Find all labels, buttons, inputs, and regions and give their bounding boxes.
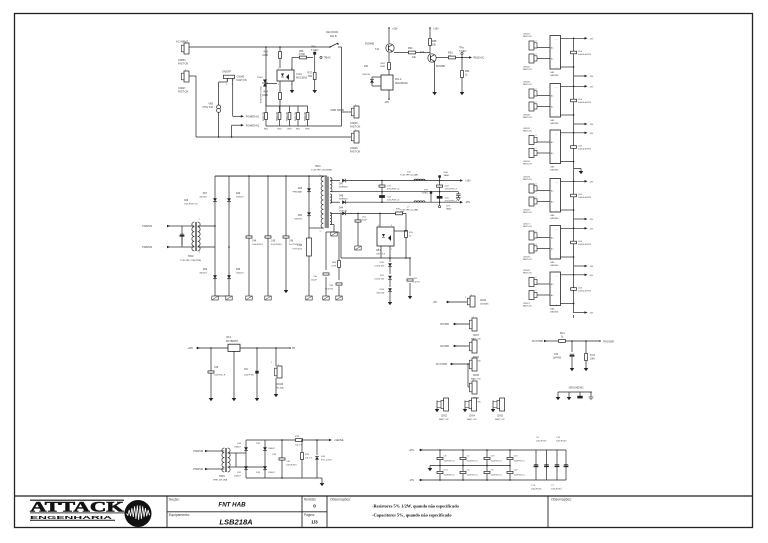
svg-text:10uF/63 L2: 10uF/63 L2 xyxy=(467,475,479,477)
svg-text:C44: C44 xyxy=(252,241,257,243)
svg-text:PWR FRNW: PWR FRNW xyxy=(331,109,345,112)
svg-text:100uF/160: 100uF/160 xyxy=(556,440,567,442)
svg-text:1N4007: 1N4007 xyxy=(199,273,207,275)
svg-text:FAST-ON: FAST-ON xyxy=(467,418,477,421)
svg-text:+15V: +15V xyxy=(409,450,415,452)
svg-text:FAST-ON: FAST-ON xyxy=(237,79,248,82)
svg-text:-Capacitores 5%, quando não es: -Capacitores 5%, quando não especificado xyxy=(372,513,452,518)
svg-text:470uF/35 LZ: 470uF/35 LZ xyxy=(387,200,400,202)
svg-text:1N4007: 1N4007 xyxy=(268,448,276,450)
svg-text:TRF5: TRF5 xyxy=(219,476,225,478)
svg-text:C33: C33 xyxy=(554,354,559,356)
svg-text:TRIGGER: TRIGGER xyxy=(603,341,614,344)
svg-text:10000uF/50V: 10000uF/50V xyxy=(578,244,592,246)
svg-text:1N4148: 1N4148 xyxy=(362,74,370,76)
svg-text:BC546B: BC546B xyxy=(436,65,445,68)
svg-text:ON/OFF: ON/OFF xyxy=(222,71,232,74)
svg-text:DIA.03/04C: DIA.03/04C xyxy=(326,31,339,34)
svg-text:FAST-ON: FAST-ON xyxy=(523,225,532,228)
svg-text:10000uF/50V: 10000uF/50V xyxy=(578,291,592,293)
svg-text:R 18: R 18 xyxy=(590,355,596,357)
svg-text:10uF/63 LE: 10uF/63 LE xyxy=(214,375,226,377)
svg-text:-BV: -BV xyxy=(590,219,594,221)
svg-text:472R: 472R xyxy=(299,53,305,56)
svg-text:FAST-ON: FAST-ON xyxy=(350,151,361,154)
svg-text:-15V: -15V xyxy=(384,101,389,104)
svg-text:-15V: -15V xyxy=(465,201,470,204)
svg-text:W224/3W: W224/3W xyxy=(305,112,307,121)
svg-text:10uF/63 L2: 10uF/63 L2 xyxy=(467,461,479,463)
svg-text:CI13: CI13 xyxy=(226,337,232,339)
svg-text:PWR/SW: PWR/SW xyxy=(142,247,153,249)
svg-text:CN019: CN019 xyxy=(523,177,531,179)
svg-text:-BV: -BV xyxy=(590,275,594,277)
svg-text:GBU806: GBU806 xyxy=(550,75,559,77)
svg-text:470uF/400: 470uF/400 xyxy=(271,244,282,246)
svg-text:FAST-ON: FAST-ON xyxy=(523,163,532,166)
svg-text:2: 2 xyxy=(536,277,537,279)
svg-text:TAB6: TAB6 xyxy=(444,174,450,177)
svg-text:10uF/63 L2: 10uF/63 L2 xyxy=(514,475,526,477)
svg-text:1: 1 xyxy=(199,219,200,221)
svg-text:POWER IN2: POWER IN2 xyxy=(246,124,260,127)
svg-text:RN1: RN1 xyxy=(381,63,386,65)
svg-text:1N4007: 1N4007 xyxy=(268,472,276,474)
svg-text:T14: T14 xyxy=(375,48,380,51)
svg-text:100R: 100R xyxy=(380,66,386,68)
svg-text:46 PWR: 46 PWR xyxy=(440,345,449,348)
svg-text:-15V: -15V xyxy=(409,480,414,482)
svg-text:GB3: GB3 xyxy=(550,167,555,169)
svg-text:+15V: +15V xyxy=(187,347,193,350)
svg-text:FAST-ON: FAST-ON xyxy=(178,63,189,66)
svg-text:2: 2 xyxy=(226,84,227,86)
svg-text:DN4: DN4 xyxy=(380,289,385,291)
svg-text:MOC3063: MOC3063 xyxy=(296,77,308,80)
svg-text:GBU806: GBU806 xyxy=(550,312,559,314)
svg-text:-BV: -BV xyxy=(590,228,594,230)
svg-text:MOC/DIP-STYLE: MOC/DIP-STYLE xyxy=(261,85,263,103)
svg-text:FNT HAB: FNT HAB xyxy=(218,502,246,509)
svg-text:-BV: -BV xyxy=(590,133,594,135)
svg-text:C09: C09 xyxy=(184,200,189,202)
svg-text:CN019: CN019 xyxy=(523,128,531,130)
svg-text:W224/3W: W224/3W xyxy=(287,112,289,121)
svg-text:Observações:: Observações: xyxy=(551,498,572,502)
svg-text:Página:: Página: xyxy=(304,513,315,517)
svg-text:D44: D44 xyxy=(339,208,344,210)
svg-text:100uF/160: 100uF/160 xyxy=(551,488,562,490)
svg-text:TOP242G: TOP242G xyxy=(292,249,302,251)
svg-text:BC546B: BC546B xyxy=(365,43,374,46)
svg-text:Seção:: Seção: xyxy=(169,498,180,502)
svg-text:2: 2 xyxy=(278,84,279,86)
svg-text:2: 2 xyxy=(536,148,537,150)
svg-text:5: 5 xyxy=(378,225,379,227)
svg-text:CN018: CN018 xyxy=(523,82,531,84)
svg-text:BYT-D-ZW: BYT-D-ZW xyxy=(321,460,333,462)
svg-text:CN020: CN020 xyxy=(523,270,531,272)
svg-text:GBU806: GBU806 xyxy=(550,170,559,172)
svg-text:POWER IN1: POWER IN1 xyxy=(246,115,260,118)
svg-text:CN09: CN09 xyxy=(480,300,487,302)
svg-text:D39: D39 xyxy=(236,269,241,271)
svg-text:-Resistores 5% 1/2W, quando nã: -Resistores 5% 1/2W, quando não especifi… xyxy=(372,503,460,508)
svg-text:1N4937: 1N4937 xyxy=(294,219,302,221)
svg-text:100uF/250 VC: 100uF/250 VC xyxy=(184,204,199,206)
svg-text:CN05: CN05 xyxy=(473,375,480,377)
svg-text:10M: 10M xyxy=(590,359,595,361)
svg-text:2: 2 xyxy=(536,89,537,91)
svg-text:10000uF/50V: 10000uF/50V xyxy=(578,102,592,104)
svg-text:OUT PWR: OUT PWR xyxy=(436,363,448,366)
svg-text:D46: D46 xyxy=(339,196,344,198)
svg-text:T-NEO: T-NEO xyxy=(421,193,428,195)
svg-text:MC78M05T: MC78M05T xyxy=(226,341,239,343)
svg-text:10uF/63 L2: 10uF/63 L2 xyxy=(444,461,456,463)
svg-text:R64: R64 xyxy=(408,47,413,50)
svg-text:CN03: CN03 xyxy=(497,416,504,418)
svg-text:CN04: CN04 xyxy=(469,416,476,418)
svg-text:C49: C49 xyxy=(214,367,219,369)
svg-text:TAB6: TAB6 xyxy=(446,208,452,211)
svg-text:GB2: GB2 xyxy=(550,120,555,122)
svg-text:45 PWR: 45 PWR xyxy=(440,323,449,326)
svg-text:FAST-ON: FAST-ON xyxy=(523,305,532,308)
svg-text:100uF/160: 100uF/160 xyxy=(536,440,547,442)
svg-text:-BV: -BV xyxy=(590,181,594,183)
svg-text:D47: D47 xyxy=(339,184,344,186)
svg-text:GB5: GB5 xyxy=(550,262,555,264)
svg-text:CN017: CN017 xyxy=(523,224,531,226)
svg-text:2: 2 xyxy=(536,41,537,43)
svg-text:100uF/25V: 100uF/25V xyxy=(286,464,297,466)
svg-text:FAST-ON: FAST-ON xyxy=(439,418,449,421)
svg-text:FAST-ON: FAST-ON xyxy=(523,130,532,133)
svg-text:FAST-ON: FAST-ON xyxy=(523,178,532,181)
svg-text:FAST-ON: FAST-ON xyxy=(523,68,532,71)
svg-text:10000uF/50V: 10000uF/50V xyxy=(578,149,592,151)
svg-text:10uF/63 L2: 10uF/63 L2 xyxy=(444,475,456,477)
svg-text:RG1: RG1 xyxy=(560,333,565,335)
svg-text:Equipamento:: Equipamento: xyxy=(169,513,190,517)
svg-text:4: 4 xyxy=(391,225,392,227)
svg-text:WRF-24K1/8A: WRF-24K1/8A xyxy=(213,479,228,482)
svg-text:6: 6 xyxy=(378,249,379,251)
svg-text:3: 3 xyxy=(320,231,321,233)
svg-text:CN018: CN018 xyxy=(523,115,531,117)
svg-text:TPV: TPV xyxy=(424,190,429,192)
svg-text:FAST-ON: FAST-ON xyxy=(495,418,505,421)
svg-text:10uF/63 L2: 10uF/63 L2 xyxy=(514,461,526,463)
svg-text:1N4007: 1N4007 xyxy=(199,197,207,199)
svg-text:CN026: CN026 xyxy=(276,384,284,386)
svg-text:W224/3W: W224/3W xyxy=(277,112,279,121)
svg-text:RK-3(8): RK-3(8) xyxy=(276,388,284,390)
svg-text:GB1: GB1 xyxy=(550,72,555,74)
svg-text:TCM-TRF-17B(37BE): TCM-TRF-17B(37BE) xyxy=(180,260,201,262)
svg-text:PWR/SW: PWR/SW xyxy=(193,469,204,471)
svg-text:1N4007: 1N4007 xyxy=(236,273,244,275)
svg-text:OUT PWR: OUT PWR xyxy=(532,340,544,343)
svg-text:2: 2 xyxy=(536,135,537,137)
svg-text:FAST-ON: FAST-ON xyxy=(523,83,532,86)
svg-text:RELE A/C: RELE A/C xyxy=(474,57,485,60)
svg-text:GBU806: GBU806 xyxy=(550,123,559,125)
svg-text:1nF/400: 1nF/400 xyxy=(553,358,562,360)
svg-text:10000uF/50V: 10000uF/50V xyxy=(578,197,592,199)
svg-text:GB4: GB4 xyxy=(550,215,555,217)
svg-text:GROUNDING: GROUNDING xyxy=(569,387,584,390)
svg-text:+15V: +15V xyxy=(433,28,439,31)
svg-text:1N4007: 1N4007 xyxy=(236,197,244,199)
svg-text:FAST-ON: FAST-ON xyxy=(523,116,532,119)
svg-text:1: 1 xyxy=(391,249,392,251)
svg-text:2: 2 xyxy=(199,252,200,254)
svg-text:-BV: -BV xyxy=(590,266,594,268)
svg-text:TR01: TR01 xyxy=(315,166,321,168)
svg-text:FR606AE: FR606AE xyxy=(293,191,303,194)
svg-text:TRI01: TRI01 xyxy=(257,77,264,79)
svg-text:10k 1%: 10k 1% xyxy=(305,458,312,460)
svg-text:+SENSE: +SENSE xyxy=(334,439,344,442)
svg-text:PWR/SW: PWR/SW xyxy=(193,451,204,453)
svg-text:06A230VAC: 06A230VAC xyxy=(395,82,408,85)
svg-text:2: 2 xyxy=(536,54,537,56)
svg-text:W224/3W: W224/3W xyxy=(295,112,297,121)
svg-text:-BV: -BV xyxy=(590,124,594,126)
svg-text:10k 1%: 10k 1% xyxy=(295,445,302,447)
svg-text:DH6: DH6 xyxy=(444,172,449,174)
svg-text:2: 2 xyxy=(536,102,537,104)
svg-text:2: 2 xyxy=(536,231,537,233)
svg-text:GBU806: GBU806 xyxy=(550,265,559,267)
svg-text:LSB218A: LSB218A xyxy=(219,518,252,527)
svg-text:+15V: +15V xyxy=(392,28,398,31)
svg-text:1: 1 xyxy=(278,68,279,70)
svg-text:-BV: -BV xyxy=(590,86,594,88)
svg-text:470uF/35 LZ: 470uF/35 LZ xyxy=(387,189,400,191)
svg-text:D09: D09 xyxy=(203,269,208,271)
svg-text:100R: 100R xyxy=(262,94,268,97)
svg-text:MUR460: MUR460 xyxy=(339,199,348,201)
svg-text:GB6: GB6 xyxy=(550,309,555,311)
svg-text:2: 2 xyxy=(536,197,537,199)
svg-text:D41: D41 xyxy=(364,65,369,68)
svg-text:07SV 410: 07SV 410 xyxy=(202,106,213,109)
svg-text:MUR460: MUR460 xyxy=(339,187,348,189)
svg-text:TR02: TR02 xyxy=(188,256,194,258)
svg-text:100nF MC: 100nF MC xyxy=(244,375,255,377)
svg-text:CI12: CI12 xyxy=(297,245,303,247)
svg-text:100uF: 100uF xyxy=(311,280,318,282)
svg-text:RL1 B: RL1 B xyxy=(330,35,337,38)
svg-text:4.7R: 4.7R xyxy=(331,266,336,268)
svg-text:1A TAB6: 1A TAB6 xyxy=(480,303,489,306)
svg-text:FAST-ON: FAST-ON xyxy=(350,126,361,129)
svg-text:+15V: +15V xyxy=(465,180,471,183)
svg-text:Revisão:: Revisão: xyxy=(304,498,317,502)
svg-text:DN2: DN2 xyxy=(380,262,385,264)
svg-text:1N4007: 1N4007 xyxy=(234,475,242,477)
svg-text:CN021: CN021 xyxy=(523,303,531,305)
svg-text:GBU806: GBU806 xyxy=(550,218,559,220)
svg-text:FAST-ON: FAST-ON xyxy=(523,211,532,214)
svg-text:CN019: CN019 xyxy=(523,257,531,259)
svg-text:50uF: 50uF xyxy=(362,220,368,222)
svg-text:PWR/SW: PWR/SW xyxy=(142,226,153,228)
svg-text:100uF/400: 100uF/400 xyxy=(252,244,263,246)
svg-text:D50: D50 xyxy=(298,215,303,217)
svg-text:47uF/16: 47uF/16 xyxy=(325,289,334,291)
svg-text:1N4148: 1N4148 xyxy=(376,293,384,295)
svg-text:-BV: -BV xyxy=(590,38,594,40)
svg-text:D40: D40 xyxy=(236,193,241,195)
svg-text:TCM-TRF-x(xxAE): TCM-TRF-x(xxAE) xyxy=(400,174,418,177)
svg-text:FAST-ON: FAST-ON xyxy=(523,272,532,275)
svg-text:1N4007: 1N4007 xyxy=(234,446,242,448)
svg-text:-BV: -BV xyxy=(590,76,594,78)
svg-text:1uF/22: 1uF/22 xyxy=(413,282,421,284)
svg-text:10uF/63 L2: 10uF/63 L2 xyxy=(491,461,503,463)
svg-text:10uF/63 L2: 10uF/63 L2 xyxy=(491,475,503,477)
svg-text:W224/3W: W224/3W xyxy=(263,112,265,121)
svg-text:FAST-ON: FAST-ON xyxy=(178,91,189,94)
svg-text:100uF/160: 100uF/160 xyxy=(531,488,542,490)
svg-text:CN019: CN019 xyxy=(523,210,531,212)
svg-text:0: 0 xyxy=(313,504,316,509)
svg-text:0.8Z5.5W: 0.8Z5.5W xyxy=(375,279,385,281)
svg-text:D08: D08 xyxy=(298,188,303,190)
svg-text:+5V: +5V xyxy=(433,301,438,304)
svg-text:CN02: CN02 xyxy=(441,416,448,418)
svg-text:2: 2 xyxy=(536,290,537,292)
svg-text:T13: T13 xyxy=(420,51,425,54)
svg-text:T-NEO: T-NEO xyxy=(311,49,318,52)
svg-text:Observações:: Observações: xyxy=(330,498,351,502)
svg-text:C45: C45 xyxy=(271,241,276,243)
svg-text:R61: R61 xyxy=(448,51,453,55)
svg-text:0.8Z5.5W: 0.8Z5.5W xyxy=(375,266,385,268)
svg-text:CN016: CN016 xyxy=(523,67,531,69)
svg-text:CN07: CN07 xyxy=(473,335,480,337)
svg-text:CN019: CN019 xyxy=(523,161,531,163)
svg-text:C46: C46 xyxy=(289,241,294,243)
svg-text:TRIAC: TRIAC xyxy=(324,57,331,60)
svg-text:2: 2 xyxy=(536,184,537,186)
svg-text:D07: D07 xyxy=(203,193,208,195)
svg-text:CN013: CN013 xyxy=(523,34,531,36)
svg-text:TCM-TRF-13(126AE): TCM-TRF-13(126AE) xyxy=(311,169,332,172)
svg-text:FAST-ON: FAST-ON xyxy=(523,258,532,261)
svg-text:ENGENHARIA: ENGENHARIA xyxy=(30,515,114,520)
svg-text:2: 2 xyxy=(536,244,537,246)
svg-text:10000uF/50V: 10000uF/50V xyxy=(578,54,592,56)
svg-text:FAST-ON: FAST-ON xyxy=(523,35,532,38)
svg-text:100R: 100R xyxy=(262,54,268,57)
svg-text:470uF/35 LZ: 470uF/35 LZ xyxy=(445,189,458,191)
svg-text:RL1 A: RL1 A xyxy=(395,78,402,81)
svg-text:470uF/35 LZ: 470uF/35 LZ xyxy=(445,201,458,203)
svg-text:-BV: -BV xyxy=(590,313,594,315)
svg-text:1/3: 1/3 xyxy=(311,520,318,525)
